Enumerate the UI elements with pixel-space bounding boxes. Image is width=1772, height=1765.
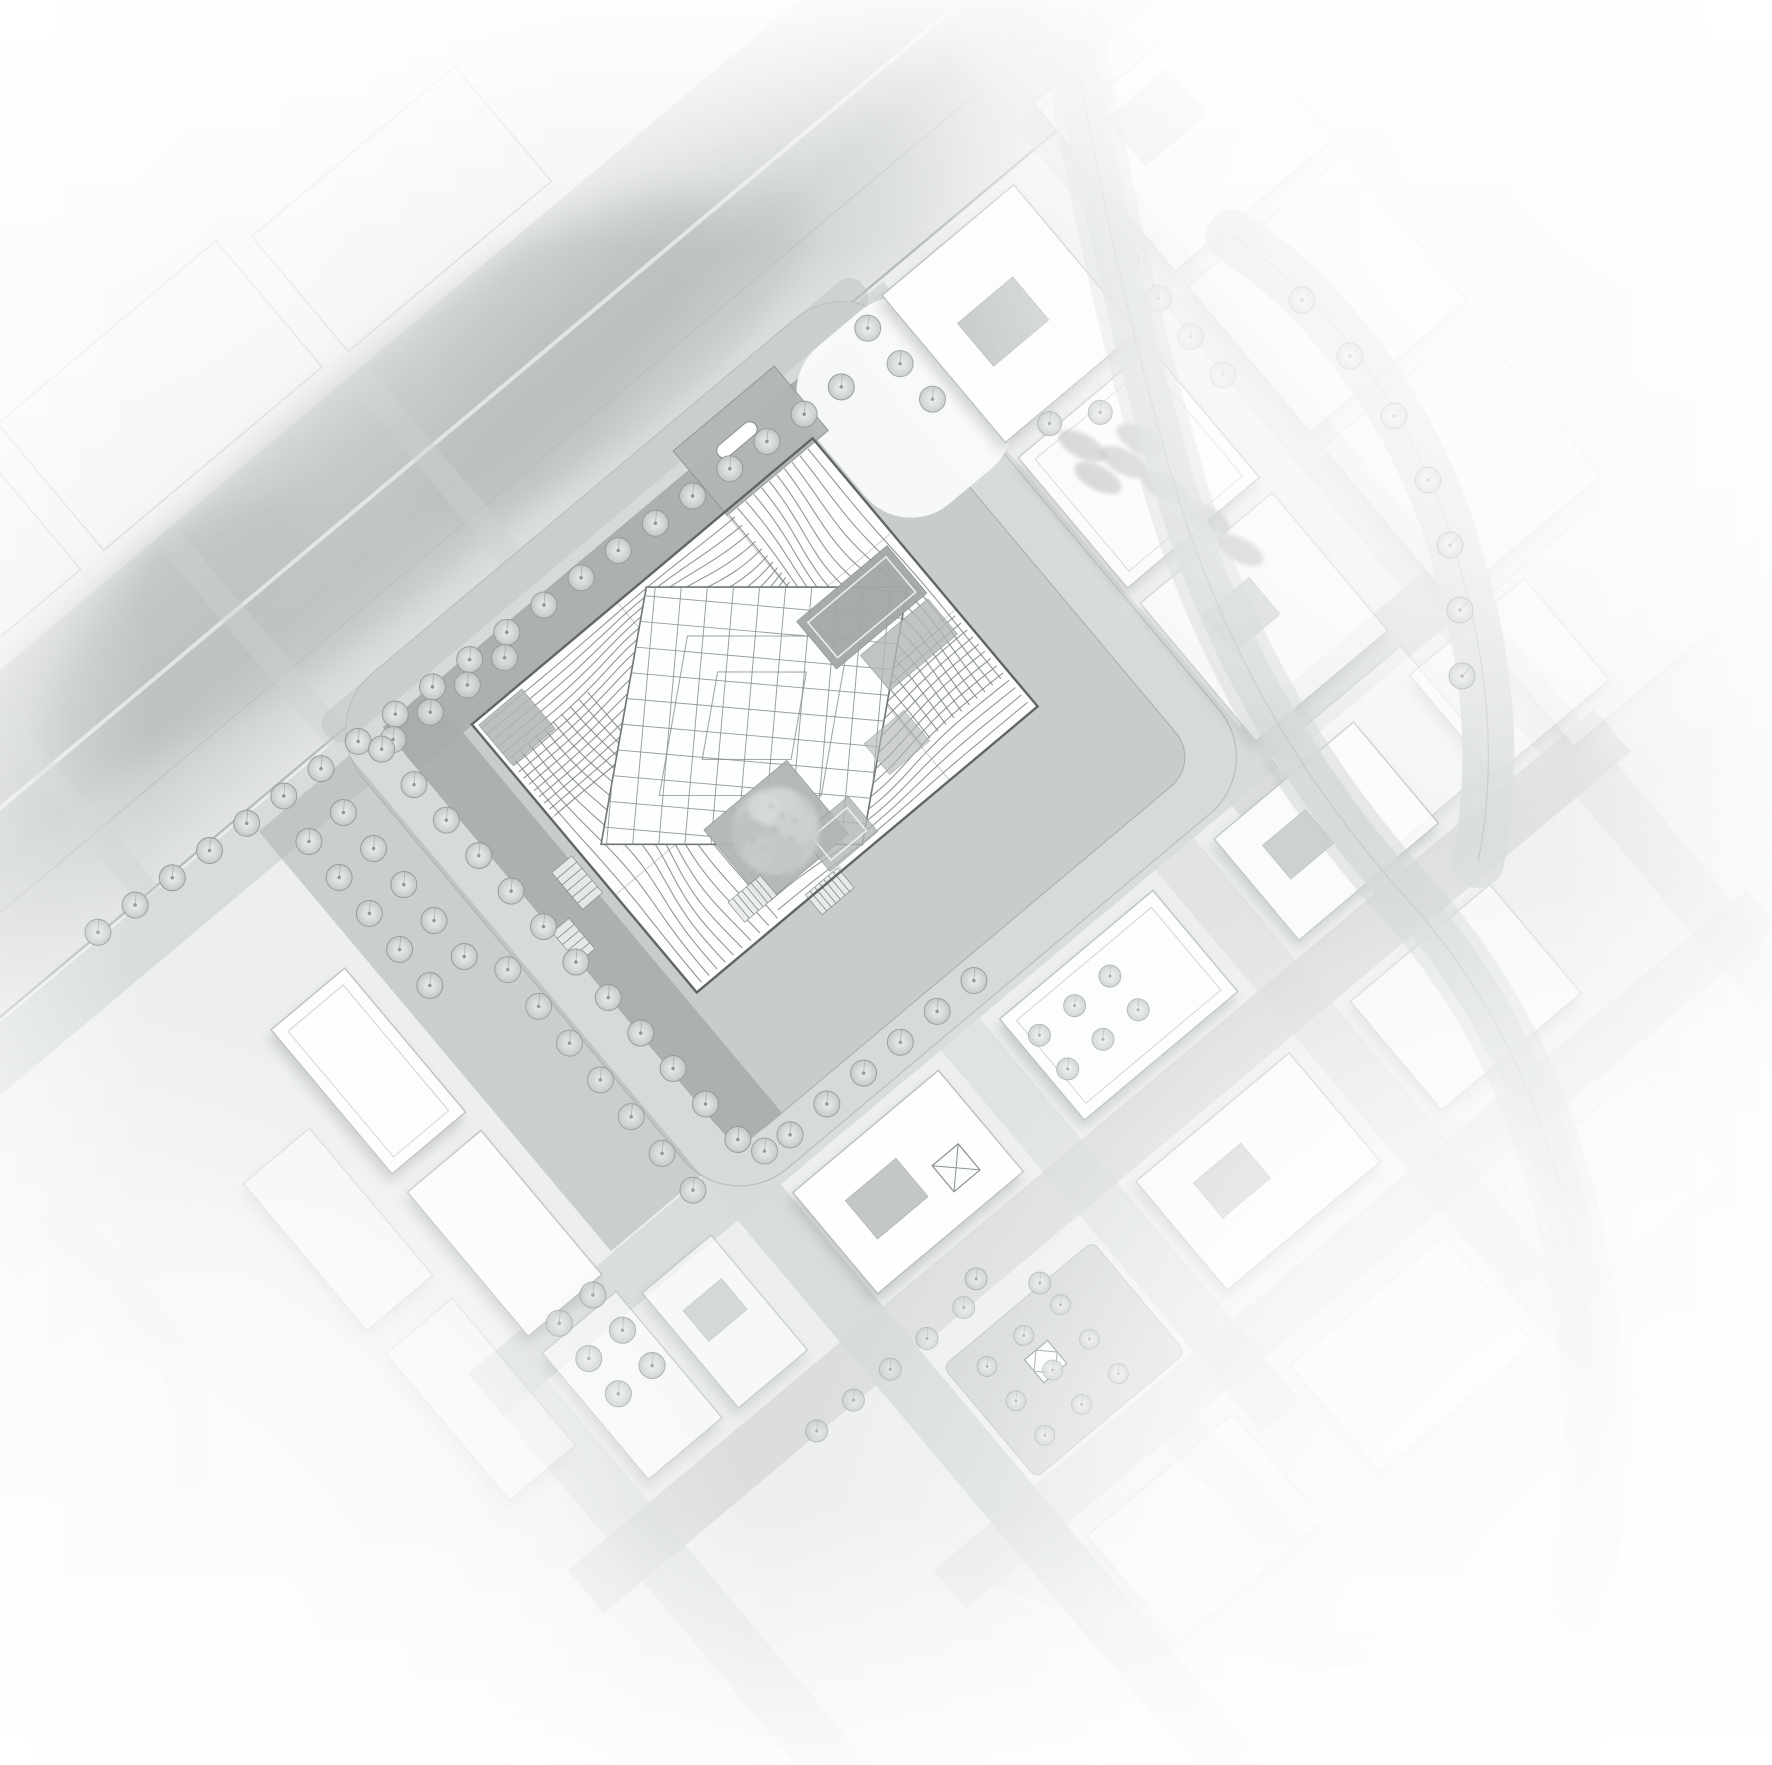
- vignette-edge: [0, 0, 150, 1765]
- vignette-edge: [0, 0, 1772, 250]
- siteplan-canvas: [0, 0, 1772, 1765]
- vignette-radial: [0, 0, 1772, 1765]
- vignette-edge: [0, 1505, 1772, 1765]
- vignette-fades: [0, 0, 1772, 1765]
- siteplan-stage: [0, 0, 1772, 1765]
- vignette-edge: [1562, 0, 1772, 1765]
